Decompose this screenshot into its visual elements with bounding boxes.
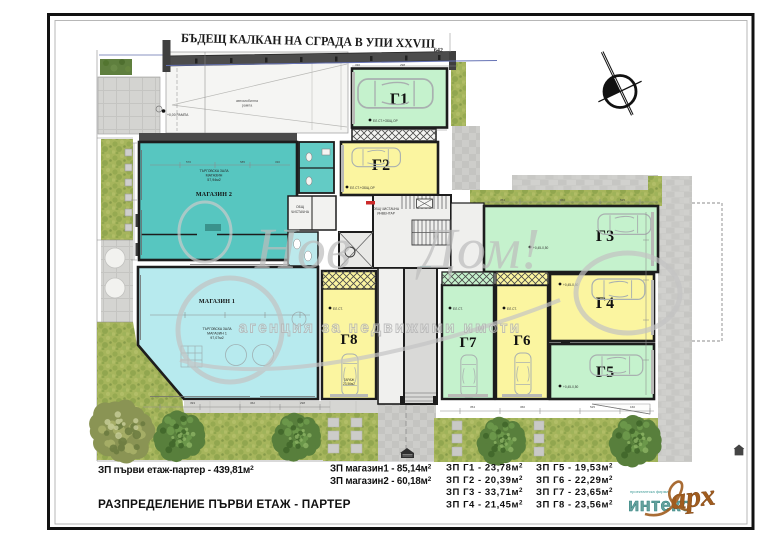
svg-text:ИНВЕНТАР: ИНВЕНТАР	[377, 212, 396, 216]
svg-text:ЗП Г8 - 23,56м2: ЗП Г8 - 23,56м2	[536, 499, 613, 510]
svg-text:автомобилна: автомобилна	[236, 99, 258, 103]
svg-text:ЗП Г2 - 20,39м2: ЗП Г2 - 20,39м2	[446, 475, 523, 486]
svg-text:Г4: Г4	[596, 295, 614, 312]
svg-text:ЕЛ.СТ.+ОБЩ.ОР: ЕЛ.СТ.+ОБЩ.ОР	[373, 119, 398, 123]
svg-text:298: 298	[400, 63, 405, 67]
svg-text:360: 360	[520, 405, 525, 409]
svg-text:Нов: Нов	[254, 216, 351, 281]
svg-text:ТЪРГОВСКА ЗАЛА: ТЪРГОВСКА ЗАЛА	[199, 169, 229, 173]
svg-text:ЗП Г3 - 33,71м2: ЗП Г3 - 33,71м2	[446, 487, 523, 498]
svg-text:агенция за недвижими имоти: агенция за недвижими имоти	[239, 320, 522, 337]
svg-text:ЗП Г1 - 23,78м2: ЗП Г1 - 23,78м2	[446, 463, 523, 474]
svg-text:МАГАЗИН: МАГАЗИН	[206, 174, 223, 178]
svg-text:ЗП Г4 - 21,45м2: ЗП Г4 - 21,45м2	[446, 499, 523, 510]
svg-text:97,07м2: 97,07м2	[210, 336, 223, 340]
svg-text:ЗП Г5 - 19,53м2: ЗП Г5 - 19,53м2	[536, 463, 613, 474]
svg-text:ЗП магазин1 - 85,14м2: ЗП магазин1 - 85,14м2	[330, 464, 432, 475]
svg-text:585: 585	[240, 160, 245, 164]
svg-text:298: 298	[300, 401, 305, 405]
svg-text:525: 525	[590, 405, 595, 409]
svg-text:57,94м2: 57,94м2	[207, 178, 220, 182]
svg-text:362: 362	[250, 401, 255, 405]
svg-text:ЕЛ.СТ.: ЕЛ.СТ.	[507, 307, 517, 311]
svg-text:Г7: Г7	[459, 335, 477, 351]
svg-text:354: 354	[500, 198, 505, 202]
svg-text:ТЪРГОВСКА ЗАЛА: ТЪРГОВСКА ЗАЛА	[202, 327, 232, 331]
svg-text:Г2: Г2	[372, 157, 390, 174]
svg-text:360: 360	[560, 198, 565, 202]
svg-text:525: 525	[620, 198, 625, 202]
svg-text:рампа: рампа	[242, 104, 252, 108]
svg-text:330: 330	[275, 160, 280, 164]
svg-text:РАЗПРЕДЕЛЕНИЕ ПЪРВИ ЕТАЖ - ПАР: РАЗПРЕДЕЛЕНИЕ ПЪРВИ ЕТАЖ - ПАРТЕР	[98, 497, 351, 511]
svg-text:330: 330	[355, 63, 360, 67]
svg-text:642: 642	[434, 48, 443, 54]
svg-text:354: 354	[470, 405, 475, 409]
svg-text:ЕЛ.СТ.: ЕЛ.СТ.	[333, 307, 343, 311]
svg-text:ЗП Г7 - 23,65м2: ЗП Г7 - 23,65м2	[536, 487, 613, 498]
svg-text:23,56м2: 23,56м2	[343, 382, 355, 386]
svg-text:ЗП Г6 - 22,29м2: ЗП Г6 - 22,29м2	[536, 475, 613, 486]
svg-text:Дом!: Дом!	[415, 216, 540, 281]
svg-text:арх: арх	[669, 479, 717, 516]
svg-text:ОБЩ: ОБЩ	[296, 205, 305, 209]
svg-text:ОБЩ ЧИСТАЧНА: ОБЩ ЧИСТАЧНА	[373, 207, 400, 211]
svg-text:Г1: Г1	[390, 91, 408, 108]
svg-text:+0,00 РАМПА: +0,00 РАМПА	[167, 113, 189, 117]
svg-text:МАГАЗИН 2: МАГАЗИН 2	[196, 192, 232, 198]
svg-text:160: 160	[630, 405, 635, 409]
svg-text:ЗП първи етаж-партер - 439,81м: ЗП първи етаж-партер - 439,81м2	[98, 465, 254, 476]
svg-text:570: 570	[186, 160, 191, 164]
svg-text:ЗП магазин2 - 60,18м2: ЗП магазин2 - 60,18м2	[330, 476, 432, 487]
svg-text:ЕЛ.СТ.: ЕЛ.СТ.	[453, 307, 463, 311]
svg-text:ЧИСТАЧНА: ЧИСТАЧНА	[291, 210, 310, 214]
svg-text:МАГАЗИН 1: МАГАЗИН 1	[199, 299, 235, 305]
svg-text:+0,45-0,50: +0,45-0,50	[563, 385, 579, 389]
svg-text:МАГАЗИН 1: МАГАЗИН 1	[207, 332, 227, 336]
svg-text:ЕЛ.СТ.+ОБЩ.ОР: ЕЛ.СТ.+ОБЩ.ОР	[350, 186, 375, 190]
svg-text:393: 393	[190, 401, 195, 405]
